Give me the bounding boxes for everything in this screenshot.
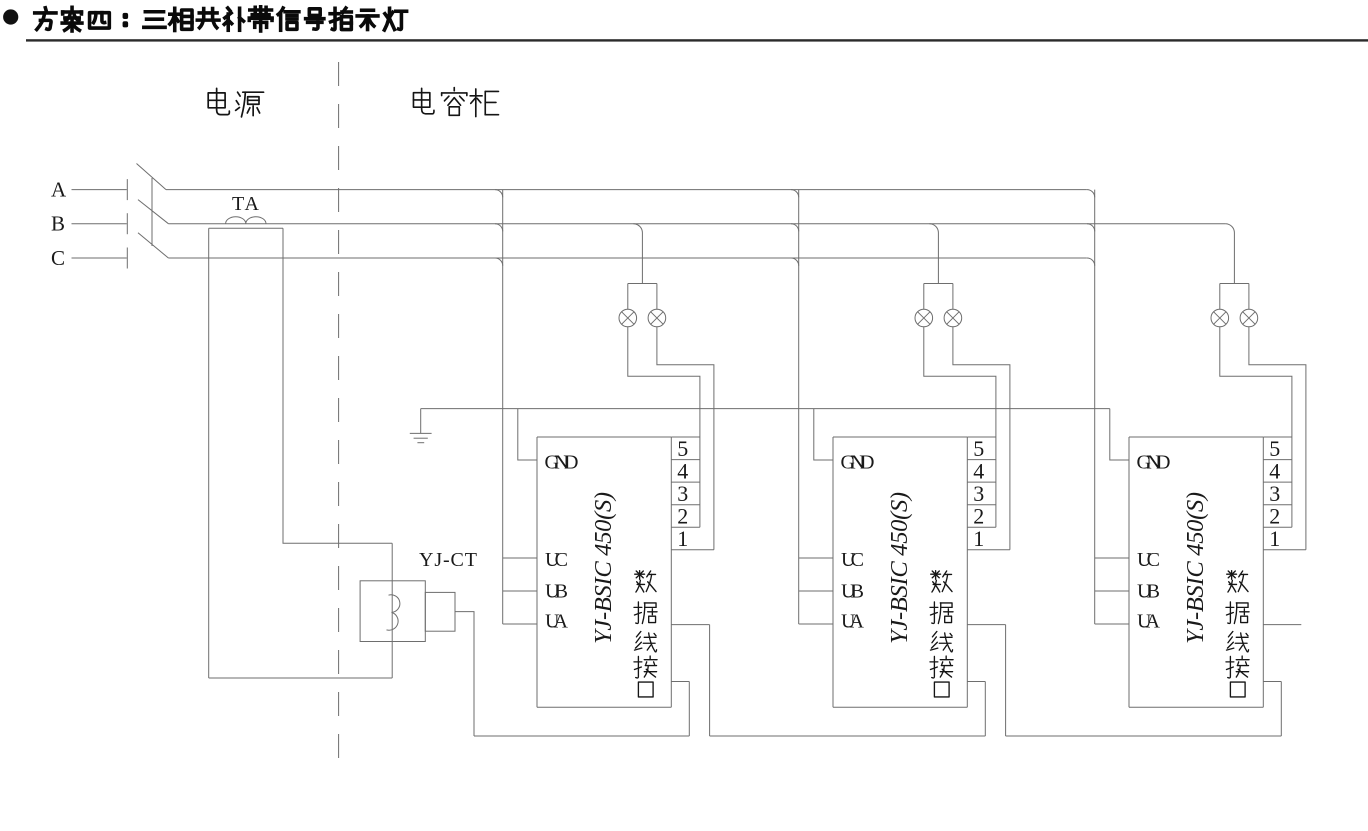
- svg-text:A: A: [51, 178, 67, 202]
- svg-text:3: 3: [677, 481, 688, 506]
- svg-text:1: 1: [973, 526, 984, 551]
- svg-text:YJ-CT: YJ-CT: [419, 549, 477, 571]
- svg-text:1: 1: [677, 526, 688, 551]
- svg-text:C: C: [51, 246, 65, 270]
- svg-text:3: 3: [973, 481, 984, 506]
- svg-text:GND: GND: [1137, 452, 1171, 474]
- svg-text:UA: UA: [1137, 611, 1161, 633]
- svg-text:YJ-BSIC 450(S): YJ-BSIC 450(S): [590, 492, 617, 644]
- svg-text:2: 2: [677, 504, 688, 529]
- svg-text:5: 5: [677, 436, 688, 461]
- svg-text:YJ-BSIC 450(S): YJ-BSIC 450(S): [1182, 492, 1209, 644]
- svg-text:YJ-BSIC 450(S): YJ-BSIC 450(S): [886, 492, 913, 644]
- svg-text:B: B: [51, 212, 65, 236]
- svg-text:4: 4: [677, 459, 688, 484]
- svg-text:UB: UB: [545, 581, 568, 603]
- svg-text:UB: UB: [841, 581, 864, 603]
- svg-text:5: 5: [1269, 436, 1280, 461]
- svg-text:4: 4: [973, 459, 984, 484]
- svg-text:GND: GND: [841, 452, 875, 474]
- svg-text:4: 4: [1269, 459, 1280, 484]
- svg-text:2: 2: [973, 504, 984, 529]
- svg-text:UA: UA: [545, 611, 569, 633]
- svg-text:2: 2: [1269, 504, 1280, 529]
- svg-text:TA: TA: [232, 193, 260, 215]
- svg-text:UA: UA: [841, 611, 865, 633]
- svg-text:3: 3: [1269, 481, 1280, 506]
- svg-text:UC: UC: [841, 549, 864, 571]
- svg-text:UC: UC: [1137, 549, 1160, 571]
- svg-text:UC: UC: [545, 549, 568, 571]
- svg-text:GND: GND: [545, 452, 579, 474]
- svg-text:1: 1: [1269, 526, 1280, 551]
- svg-text:UB: UB: [1137, 581, 1160, 603]
- svg-text:5: 5: [973, 436, 984, 461]
